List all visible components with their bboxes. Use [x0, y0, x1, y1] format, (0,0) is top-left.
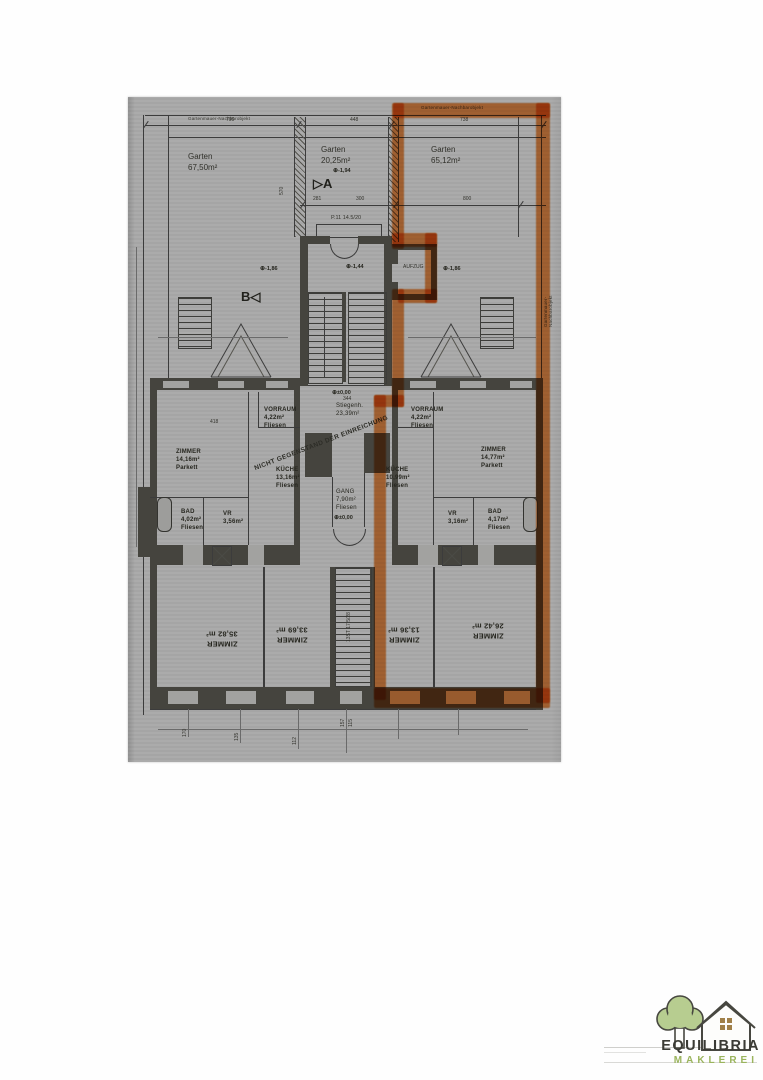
- dim-line: [408, 337, 536, 338]
- stair-direction-arrow: [324, 297, 325, 377]
- level-marker: ⊕±0,00: [332, 389, 351, 396]
- garden-label: Garten 20,25m²: [321, 145, 350, 167]
- dim-label: 115: [349, 719, 354, 727]
- dim-label: 112: [293, 737, 298, 745]
- door-arc: [330, 244, 345, 259]
- room-label-zimmer-right: ZIMMER 14,77m² Parkett: [481, 447, 506, 470]
- door-arc: [333, 529, 350, 546]
- section-marker-a: ▷A: [313, 177, 332, 190]
- main-stairs-flight: [308, 292, 343, 384]
- dim-label: 157: [341, 719, 346, 727]
- elevator-label: AUFZUG: [403, 265, 424, 270]
- section-a-label: A: [323, 176, 332, 191]
- bay-wall: [138, 487, 150, 557]
- room-label-zimmer-left: ZIMMER 14,16m² Parkett: [176, 449, 201, 472]
- dim-label: 170: [183, 729, 188, 737]
- cabinet: [212, 546, 232, 566]
- partition-line: [203, 497, 204, 552]
- side-stairs: [178, 297, 212, 349]
- partition-line: [433, 497, 536, 498]
- window: [286, 691, 314, 704]
- room-label-zimmer-b4: ZIMMER 26,42 m²: [472, 621, 504, 641]
- window: [266, 381, 288, 388]
- window: [460, 381, 486, 388]
- room-label-vr-right: VR 3,16m²: [448, 511, 468, 527]
- room-label-bad-left: BAD 4,02m² Fliesen: [181, 509, 203, 532]
- door-opening: [248, 545, 264, 565]
- wall: [300, 236, 330, 244]
- window: [163, 381, 189, 388]
- window: [218, 381, 244, 388]
- stair-landing-line: [308, 385, 385, 386]
- window: [168, 691, 198, 704]
- highlight-right: [536, 103, 550, 703]
- dim-label: 570: [280, 187, 285, 195]
- dim-line: [188, 709, 189, 737]
- partition-line: [433, 567, 435, 687]
- room-label-stiegenhaus: Stiegenh. 23,39m²: [336, 403, 363, 419]
- brand-name: EQUILIBRIA: [644, 1038, 760, 1054]
- dim-line: [158, 337, 288, 338]
- stair-divider-wall: [342, 292, 346, 382]
- garden-boundary-line: [518, 117, 519, 237]
- window: [226, 691, 256, 704]
- bay-roof-outline: [420, 322, 482, 378]
- room-label-gang: GANG 7,90m² Fliesen: [336, 489, 357, 512]
- door-arc: [349, 529, 366, 546]
- dim-label: 281: [313, 197, 321, 202]
- dim-line: [458, 709, 459, 735]
- room-label-vr-left: VR 3,56m²: [223, 511, 243, 527]
- cabinet: [442, 546, 462, 566]
- section-marker-b: B◁: [241, 290, 260, 303]
- dim-label: 800: [463, 197, 471, 202]
- level-marker: ⊕-1,94: [333, 167, 351, 174]
- wall: [358, 236, 392, 244]
- highlight-left-upper: [392, 103, 404, 249]
- dim-line: [136, 247, 137, 547]
- room-label-bad-right: BAD 4,17m² Fliesen: [488, 509, 510, 532]
- dim-label: 795: [226, 118, 234, 123]
- wall: [150, 378, 157, 710]
- dim-label: 738: [460, 118, 468, 123]
- garden-boundary-line: [168, 137, 546, 138]
- garden-divider-wall: [294, 117, 306, 237]
- highlight-left-lower: [374, 395, 386, 700]
- partition-line: [248, 392, 249, 552]
- window: [340, 691, 362, 704]
- window: [410, 381, 436, 388]
- dim-label: 344: [343, 397, 351, 402]
- room-label-zimmer-b1: ZIMMER 35,82 m²: [206, 629, 238, 649]
- dim-line: [143, 115, 144, 715]
- partition-line: [258, 392, 259, 427]
- dim-line: [300, 205, 546, 206]
- partition-line: [332, 477, 333, 527]
- dim-label: 448: [350, 118, 358, 123]
- door-opening: [183, 545, 203, 565]
- stair-bottom-label: 13ST 17,5/28: [347, 612, 352, 642]
- dim-line: [298, 709, 299, 749]
- room-label-zimmer-b3: ZIMMER 13,36 m²: [388, 625, 420, 645]
- dim-line: [398, 709, 399, 739]
- dim-line: [158, 729, 528, 730]
- wall: [300, 236, 308, 386]
- facade-line: [150, 709, 536, 710]
- level-marker: ⊕-1,86: [443, 265, 461, 272]
- floor-plan-scan: Gartenmauer-Nachbarobjekt Gartenmauer-Na…: [128, 97, 561, 762]
- level-marker: ⊕±0,00: [334, 514, 353, 521]
- section-b-label: B: [241, 289, 250, 304]
- room-label-kueche-right: KÜCHE 10,99m² Fliesen: [386, 467, 410, 490]
- letterhead-rule: [604, 1052, 646, 1053]
- wall: [392, 545, 536, 565]
- garden-label: Garten 67,50m²: [188, 152, 217, 174]
- brand-subtitle: MAKLEREI: [644, 1055, 758, 1066]
- bay-roof-outline: [210, 322, 272, 378]
- room-label-vorraum-left: VORRAUM 4,22m² Fliesen: [264, 407, 296, 430]
- dim-label: 418: [210, 420, 218, 425]
- window: [510, 381, 532, 388]
- garden-boundary-line: [168, 115, 169, 378]
- bathtub: [157, 497, 172, 532]
- highlight-top: [393, 103, 550, 118]
- partition-line: [473, 497, 474, 552]
- level-marker: ⊕-1,86: [260, 265, 278, 272]
- highlight-mid: [392, 289, 404, 407]
- boundary-label: Gartenmauer-Nachbarobjekt: [188, 117, 250, 122]
- partition-line: [263, 567, 265, 687]
- dim-label: 135: [235, 733, 240, 741]
- dim-line: [346, 709, 347, 753]
- door-opening: [478, 545, 494, 565]
- room-label-kueche-left: KÜCHE 13,16m² Fliesen: [276, 467, 300, 490]
- stair-note: P.11 14.5/20: [331, 216, 361, 222]
- level-marker: ⊕-1,44: [346, 263, 364, 270]
- basement-stairs: [335, 567, 372, 687]
- scanned-floorplan-page: Gartenmauer-Nachbarobjekt Gartenmauer-Na…: [0, 0, 763, 1080]
- door-opening: [418, 545, 438, 565]
- dim-line: [145, 125, 546, 126]
- door-arc: [344, 244, 359, 259]
- highlight-bottom: [374, 688, 550, 708]
- main-stairs-flight: [348, 292, 387, 384]
- room-label-vorraum-right: VORRAUM 4,22m² Fliesen: [411, 407, 443, 430]
- dim-label: 300: [356, 197, 364, 202]
- partition-line: [364, 473, 365, 527]
- garden-label: Garten 65,12m²: [431, 145, 460, 167]
- dim-line: [240, 709, 241, 743]
- side-stairs: [480, 297, 514, 349]
- room-label-zimmer-b2: ZIMMER 33,69 m²: [276, 625, 308, 645]
